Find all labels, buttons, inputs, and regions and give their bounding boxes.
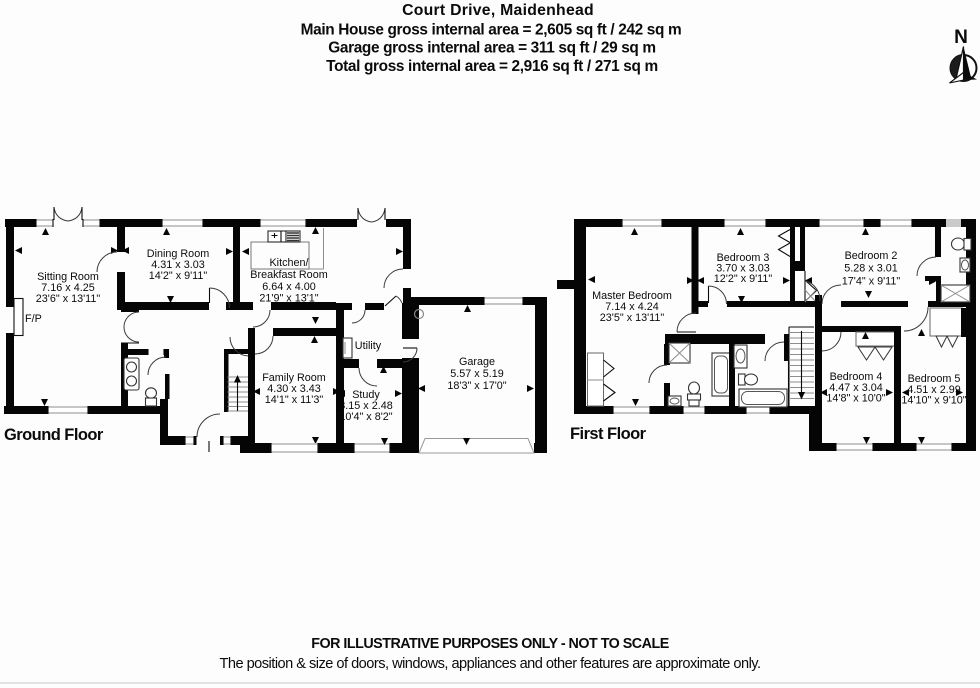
svg-text:Breakfast Room: Breakfast Room	[250, 269, 327, 281]
svg-text:Garage: Garage	[459, 356, 495, 368]
svg-text:F/P: F/P	[25, 313, 42, 325]
svg-text:Bedroom 2: Bedroom 2	[845, 250, 898, 262]
svg-text:5.57 x 5.19: 5.57 x 5.19	[450, 368, 503, 380]
svg-text:Total gross internal area = 2,: Total gross internal area = 2,916 sq ft …	[326, 58, 658, 75]
svg-text:First Floor: First Floor	[570, 425, 647, 443]
svg-text:Kitchen/: Kitchen/	[269, 257, 308, 269]
svg-text:17'4" x 9'11": 17'4" x 9'11"	[842, 276, 901, 288]
svg-text:12'2" x 9'11": 12'2" x 9'11"	[714, 273, 773, 285]
svg-text:6.64 x 4.00: 6.64 x 4.00	[262, 281, 315, 293]
svg-text:Utility: Utility	[355, 340, 382, 352]
svg-text:23'6" x 13'11": 23'6" x 13'11"	[36, 293, 101, 305]
svg-text:5.28 x 3.01: 5.28 x 3.01	[844, 263, 897, 275]
svg-text:The position & size of doors,: The position & size of doors, windows, a…	[219, 656, 760, 672]
svg-text:N: N	[954, 27, 968, 48]
svg-text:23'5" x 13'11": 23'5" x 13'11"	[600, 312, 665, 324]
svg-text:Garage gross internal area = 3: Garage gross internal area = 311 sq ft /…	[328, 40, 656, 57]
svg-text:14'10" x 9'10": 14'10" x 9'10"	[901, 395, 966, 407]
svg-text:14'8" x 10'0": 14'8" x 10'0"	[826, 393, 885, 405]
svg-text:Ground Floor: Ground Floor	[4, 426, 104, 444]
svg-text:Court Drive, Maidenhead: Court Drive, Maidenhead	[402, 2, 594, 19]
svg-text:18'3" x 17'0": 18'3" x 17'0"	[447, 380, 506, 392]
svg-text:14'2" x 9'11": 14'2" x 9'11"	[149, 270, 208, 282]
svg-text:Main House gross internal area: Main House gross internal area = 2,605 s…	[301, 22, 682, 39]
svg-text:14'1" x 11'3": 14'1" x 11'3"	[265, 394, 324, 406]
svg-text:10'4" x 8'2": 10'4" x 8'2"	[339, 411, 392, 423]
svg-text:FOR ILLUSTRATIVE PURPOSES ONLY: FOR ILLUSTRATIVE PURPOSES ONLY - NOT TO …	[311, 636, 668, 652]
